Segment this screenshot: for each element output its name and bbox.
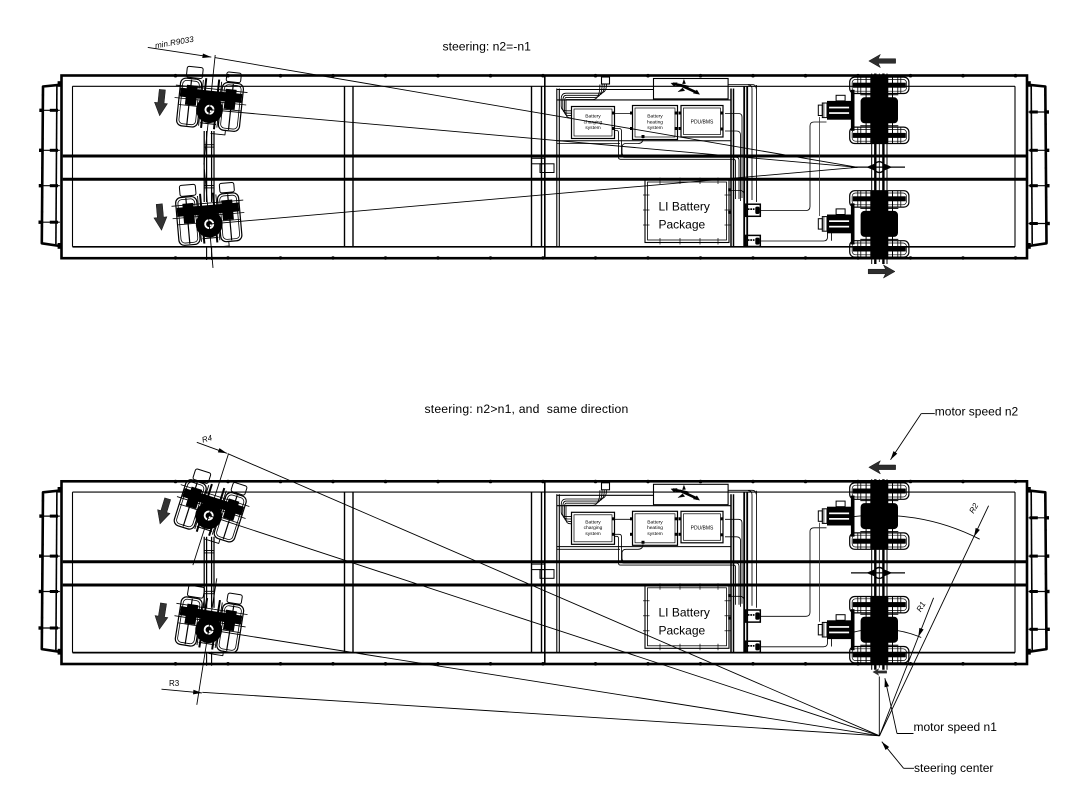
svg-text:steering: n2=-n1: steering: n2=-n1 — [443, 40, 532, 54]
svg-text:motor speed n1: motor speed n1 — [914, 720, 998, 734]
svg-text:steering: n2>n1, and same dir: steering: n2>n1, and same direction — [425, 402, 629, 416]
svg-text:R3: R3 — [169, 679, 180, 688]
svg-text:steering center: steering center — [914, 761, 993, 775]
svg-text:motor speed n2: motor speed n2 — [935, 405, 1019, 419]
